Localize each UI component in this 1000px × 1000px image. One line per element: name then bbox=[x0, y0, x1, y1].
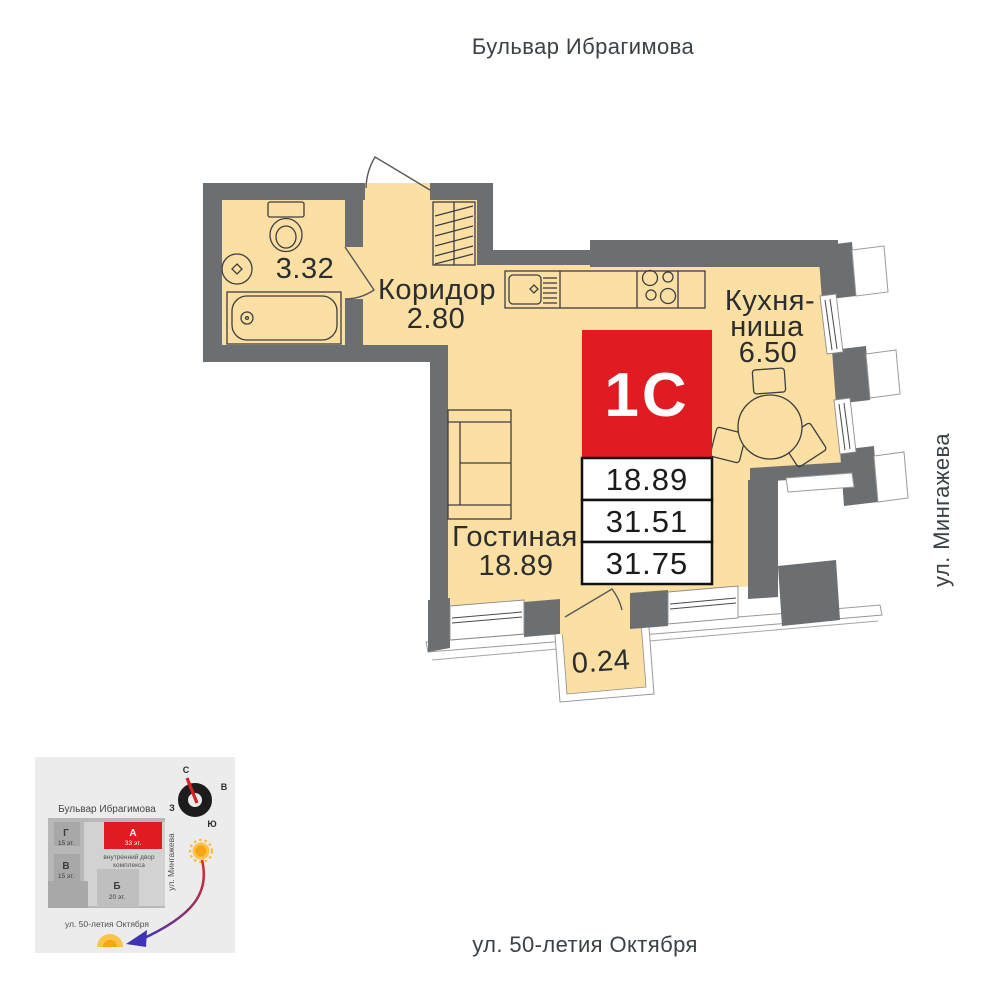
building-b-label: Б bbox=[113, 881, 120, 892]
minimap-street-bottom: ул. 50-летия Октября bbox=[65, 919, 149, 929]
building-v-floors: 15 эт. bbox=[58, 873, 74, 880]
facade-box-bottom bbox=[874, 452, 908, 502]
minimap: С В З Ю Бульвар Ибрагимова Г 15 эт. В 15… bbox=[35, 757, 235, 953]
compass-west: З bbox=[169, 803, 175, 813]
building-a-floors: 33 эт. bbox=[125, 840, 141, 847]
facade-box-top bbox=[852, 246, 888, 296]
compass-east: В bbox=[221, 782, 228, 792]
balcony-area-label: 0.24 bbox=[571, 644, 632, 680]
building-v-label: В bbox=[62, 861, 69, 872]
floor-plan-scene: Бульвар Ибрагимова ул. Мингажева ул. 50-… bbox=[0, 0, 1000, 1000]
street-label-right: ул. Мингажева bbox=[929, 433, 954, 587]
minimap-street-top: Бульвар Ибрагимова bbox=[58, 803, 156, 815]
unit-type-label: 1С bbox=[604, 361, 689, 430]
corridor-label: Коридор bbox=[378, 274, 496, 306]
street-label-top: Бульвар Ибрагимова bbox=[472, 34, 695, 59]
kitchen-area-label: 6.50 bbox=[739, 337, 797, 369]
courtyard-label-line2: комплекса bbox=[113, 862, 145, 869]
building-g-floors: 15 эт. bbox=[58, 840, 74, 847]
area-room-value: 18.89 bbox=[606, 462, 689, 497]
living-area-label: 18.89 bbox=[478, 550, 553, 582]
building-a-label: А bbox=[129, 828, 136, 839]
bathroom-area-label: 3.32 bbox=[276, 253, 334, 285]
window-bottom-right bbox=[668, 586, 738, 624]
area-total-value: 31.75 bbox=[606, 546, 689, 581]
building-g-label: Г bbox=[63, 828, 69, 839]
bathroom-door-opening bbox=[345, 247, 363, 299]
street-label-bottom: ул. 50-летия Октября bbox=[472, 932, 698, 957]
building-b-floors: 20 эт. bbox=[109, 894, 125, 901]
facade-box-middle bbox=[866, 350, 900, 398]
courtyard-label-line1: внутренний двор bbox=[103, 853, 155, 861]
area-apartment-value: 31.51 bbox=[606, 504, 689, 539]
dining-table-icon bbox=[738, 395, 802, 459]
compass-north: С bbox=[183, 765, 190, 775]
living-label: Гостиная bbox=[452, 521, 578, 553]
unit-badge: 1С 18.89 31.51 31.75 bbox=[582, 330, 712, 584]
corridor-area-label: 2.80 bbox=[407, 303, 465, 335]
entrance-opening bbox=[365, 183, 430, 200]
compass-south: Ю bbox=[207, 819, 216, 829]
minimap-street-side: ул. Мингажева bbox=[166, 833, 176, 891]
building-complex: Г 15 эт. В 15 эт. А 33 эт. Б 20 эт. внут… bbox=[48, 818, 165, 908]
